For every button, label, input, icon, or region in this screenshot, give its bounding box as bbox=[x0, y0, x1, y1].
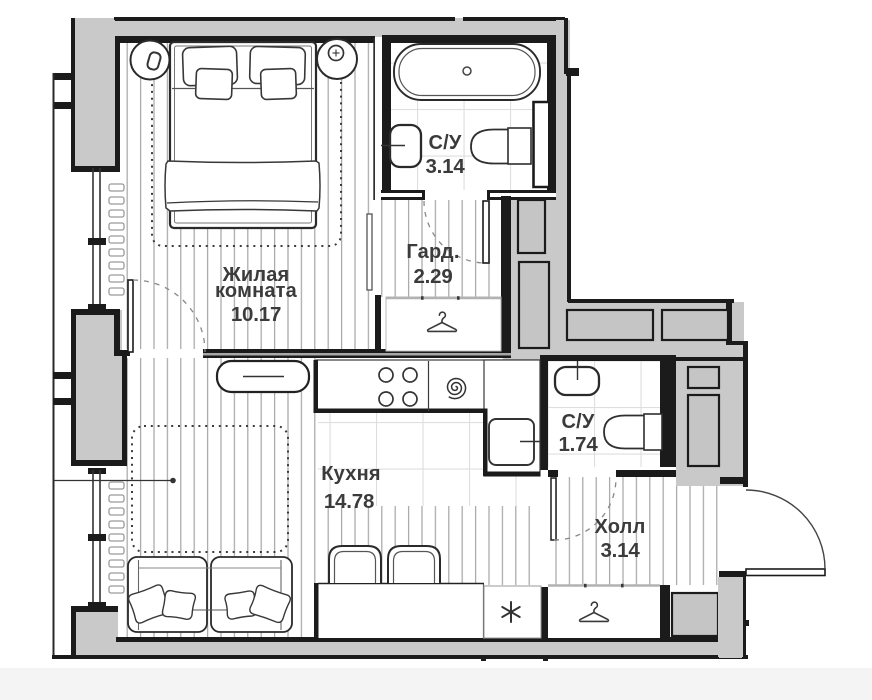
svg-text:1.74: 1.74 bbox=[558, 433, 598, 456]
svg-text:С/У: С/У bbox=[561, 411, 594, 433]
svg-text:Кухня: Кухня bbox=[321, 463, 380, 485]
svg-text:14.78: 14.78 bbox=[324, 490, 374, 513]
svg-text:Холл: Холл bbox=[594, 516, 645, 538]
svg-text:Гард.: Гард. bbox=[406, 241, 459, 263]
svg-text:С/У: С/У bbox=[428, 132, 461, 154]
svg-text:10.17: 10.17 bbox=[231, 303, 281, 326]
svg-text:3.14: 3.14 bbox=[425, 155, 465, 178]
svg-text:комната: комната bbox=[215, 280, 298, 302]
svg-text:2.29: 2.29 bbox=[413, 265, 452, 288]
svg-text:3.14: 3.14 bbox=[600, 539, 640, 562]
